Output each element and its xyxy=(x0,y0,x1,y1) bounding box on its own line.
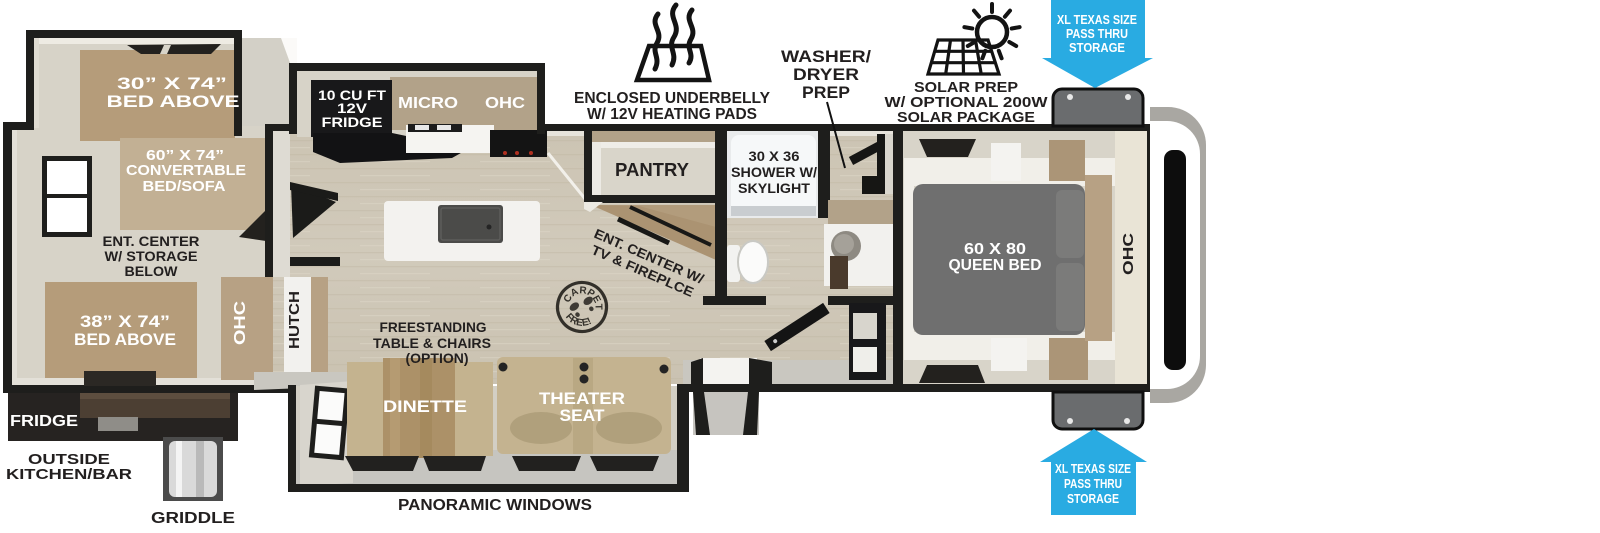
svg-text:FRIDGE: FRIDGE xyxy=(10,413,78,430)
svg-text:WASHER/: WASHER/ xyxy=(781,47,871,66)
svg-text:GRIDDLE: GRIDDLE xyxy=(151,510,235,527)
svg-text:BED/SOFA: BED/SOFA xyxy=(143,178,226,195)
svg-text:PASS THRU: PASS THRU xyxy=(1064,477,1122,491)
svg-text:SEAT: SEAT xyxy=(560,406,606,425)
svg-text:DINETTE: DINETTE xyxy=(383,397,467,416)
svg-text:SHOWER W/: SHOWER W/ xyxy=(731,165,817,180)
svg-text:XL TEXAS SIZE: XL TEXAS SIZE xyxy=(1055,462,1131,476)
svg-text:OHC: OHC xyxy=(1120,233,1137,275)
svg-text:BED ABOVE: BED ABOVE xyxy=(74,330,176,349)
svg-text:PREP: PREP xyxy=(802,83,850,102)
svg-text:30 X 36: 30 X 36 xyxy=(749,149,801,164)
svg-text:QUEEN BED: QUEEN BED xyxy=(949,257,1042,274)
svg-text:HUTCH: HUTCH xyxy=(286,291,303,349)
svg-text:BELOW: BELOW xyxy=(125,263,179,279)
svg-text:60 X 80: 60 X 80 xyxy=(964,241,1026,258)
svg-text:MICRO: MICRO xyxy=(398,95,458,112)
svg-text:ENT. CENTER: ENT. CENTER xyxy=(103,233,200,249)
svg-text:OHC: OHC xyxy=(485,95,525,112)
svg-text:38” X 74”: 38” X 74” xyxy=(80,312,170,331)
svg-text:CONVERTABLE: CONVERTABLE xyxy=(126,162,246,179)
svg-text:FRIDGE: FRIDGE xyxy=(322,114,383,130)
svg-text:PASS THRU: PASS THRU xyxy=(1066,27,1128,41)
svg-text:KITCHEN/BAR: KITCHEN/BAR xyxy=(6,466,132,483)
svg-text:(OPTION): (OPTION) xyxy=(406,350,469,366)
svg-text:TABLE & CHAIRS: TABLE & CHAIRS xyxy=(373,335,491,351)
svg-text:PANTRY: PANTRY xyxy=(615,160,689,180)
svg-text:W/ STORAGE: W/ STORAGE xyxy=(105,248,198,264)
svg-text:DRYER: DRYER xyxy=(793,65,859,84)
svg-text:FREESTANDING: FREESTANDING xyxy=(380,319,487,335)
svg-text:SOLAR PACKAGE: SOLAR PACKAGE xyxy=(897,109,1035,126)
svg-text:XL TEXAS SIZE: XL TEXAS SIZE xyxy=(1057,13,1137,27)
svg-text:BED ABOVE: BED ABOVE xyxy=(107,92,240,111)
svg-text:30” X 74”: 30” X 74” xyxy=(117,74,227,93)
svg-text:ENCLOSED UNDERBELLY: ENCLOSED UNDERBELLY xyxy=(574,90,770,107)
svg-text:STORAGE: STORAGE xyxy=(1069,41,1125,55)
svg-text:SKYLIGHT: SKYLIGHT xyxy=(738,181,811,196)
svg-text:OHC: OHC xyxy=(232,300,249,345)
svg-text:PANORAMIC WINDOWS: PANORAMIC WINDOWS xyxy=(398,497,592,514)
svg-text:STORAGE: STORAGE xyxy=(1067,492,1119,506)
svg-text:W/ 12V HEATING PADS: W/ 12V HEATING PADS xyxy=(587,106,757,123)
